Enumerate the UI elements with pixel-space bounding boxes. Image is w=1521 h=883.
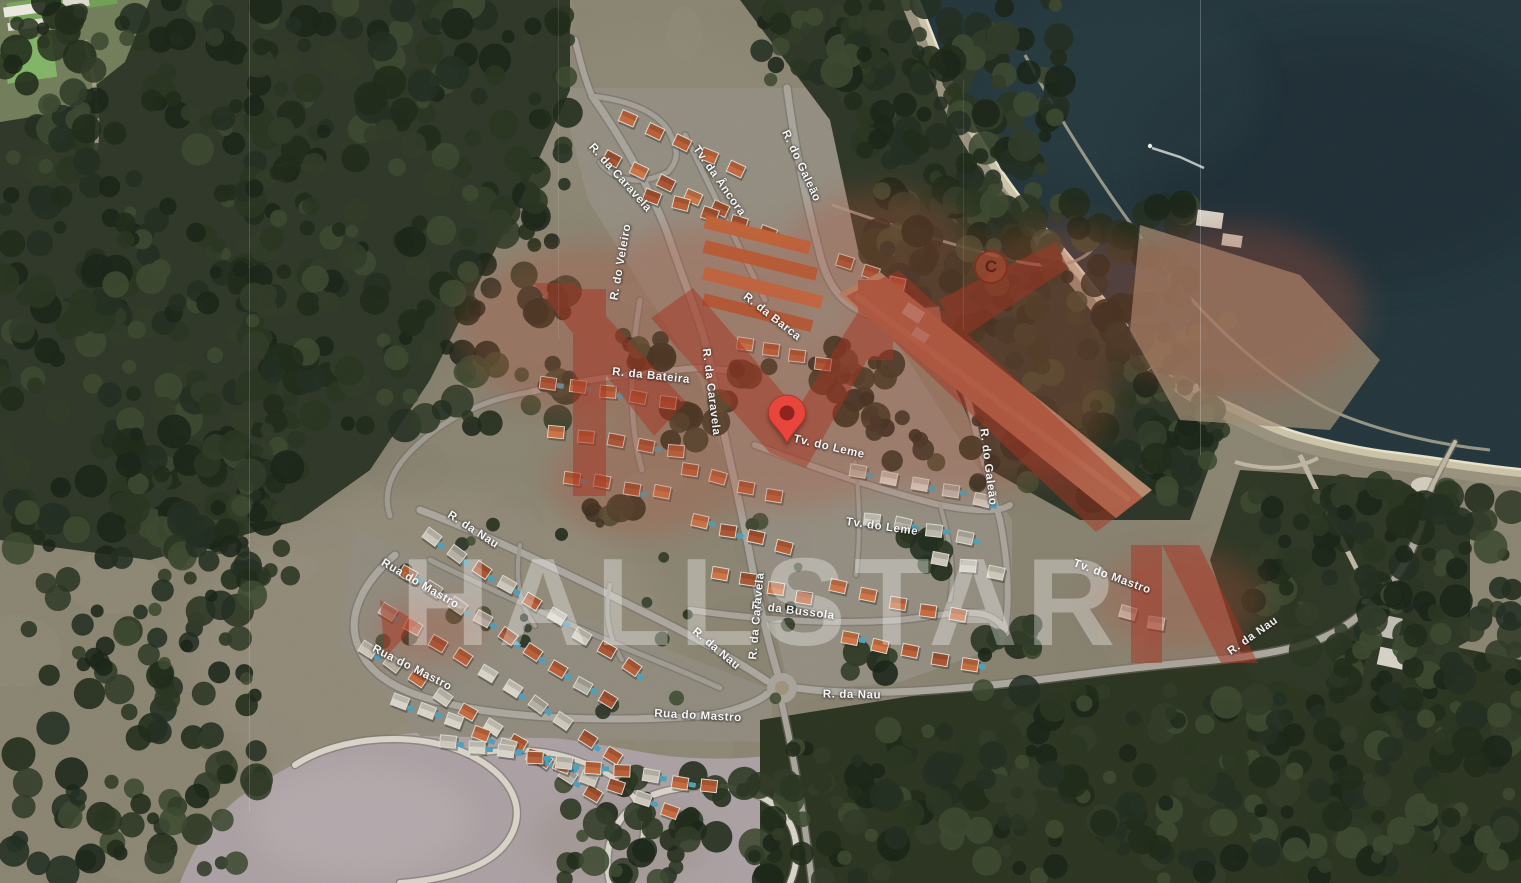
satellite-imagery (0, 0, 1521, 883)
satellite-map[interactable]: R. da CaravelaTv. da ÂncoraR. do GaleãoR… (0, 0, 1521, 883)
pin-center-dot (780, 406, 795, 421)
location-pin[interactable] (764, 386, 810, 444)
